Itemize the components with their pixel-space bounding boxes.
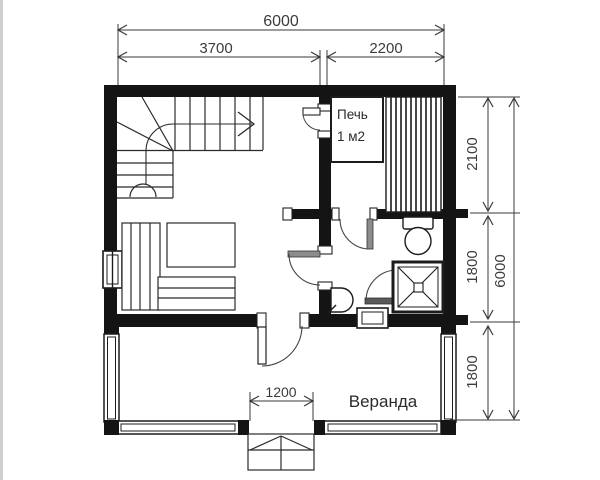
dim-top-left: 3700 [199,40,232,57]
stair-walk-line [146,124,252,185]
wall-right [443,85,456,330]
dim-right-total: 6000 [492,254,509,287]
dim-right-middle: 1800 [464,250,481,283]
bench-low [158,277,235,310]
shower-cabin [393,262,443,312]
post-corner-right [441,420,456,435]
wall-log-stub-right-1 [456,209,468,218]
dim-top-right: 2200 [369,40,402,57]
floor-plan: Печь 1 м2 [0,0,600,480]
post-entry-right [314,420,325,435]
shower-drain [414,283,423,292]
dim-right-bottom: 1800 [464,355,481,388]
post-corner-left [104,420,119,435]
opening-stove-hatch [319,111,331,131]
staircase [117,97,263,198]
post-entry-left [238,420,249,435]
dim-right-top: 2100 [464,137,481,170]
opening-veranda-door [266,313,300,328]
stove-label-line1: Печь [337,107,368,122]
window-washroom-bottom [357,308,388,328]
stair-winders [117,97,173,151]
window-left-room [103,251,122,288]
door-washroom [288,251,320,285]
page-left-edge [0,0,3,480]
log-stub-cap [283,208,292,220]
wall-top [104,85,456,97]
door-entry-veranda [258,326,302,366]
wall-partition-vertical-lower [319,290,331,314]
corner-sink [328,288,353,313]
door-stove-hatch [303,108,320,130]
dim-entrance-width: 1200 [265,384,296,400]
toilet [403,217,433,255]
bench-side [122,223,160,310]
entrance-steps [248,434,314,470]
jamb-sauna-left [332,208,339,220]
stair-start-curve [130,184,156,197]
bed-bench [122,223,235,310]
jamb-entry-left [257,313,266,328]
door-sauna [340,219,373,249]
floor-plan-drawing: Печь 1 м2 [0,0,600,480]
jamb-sauna-right [370,208,377,220]
stair-treads-lower [117,151,173,198]
wall-log-stub-left [290,209,319,219]
opening-sauna-door [339,208,370,220]
dim-arrowheads [118,25,519,419]
jamb-washroom-bottom [318,282,332,290]
jamb-entry-right [300,313,309,328]
wall-left [104,85,117,330]
sauna-bench [386,97,441,212]
dim-top-total: 6000 [263,13,299,30]
toilet-bowl [405,228,431,255]
wall-log-stub-right-2 [456,315,468,325]
stove: Печь 1 м2 [331,97,383,162]
veranda-label: Веранда [349,392,418,411]
ext-lines-right [450,97,520,420]
jamb-stove-bottom [318,131,332,138]
bench-table [167,223,235,267]
dimension-labels: 6000 3700 2200 2100 1800 6000 1800 1200 [199,13,509,400]
stove-label-line2: 1 м2 [337,129,365,144]
